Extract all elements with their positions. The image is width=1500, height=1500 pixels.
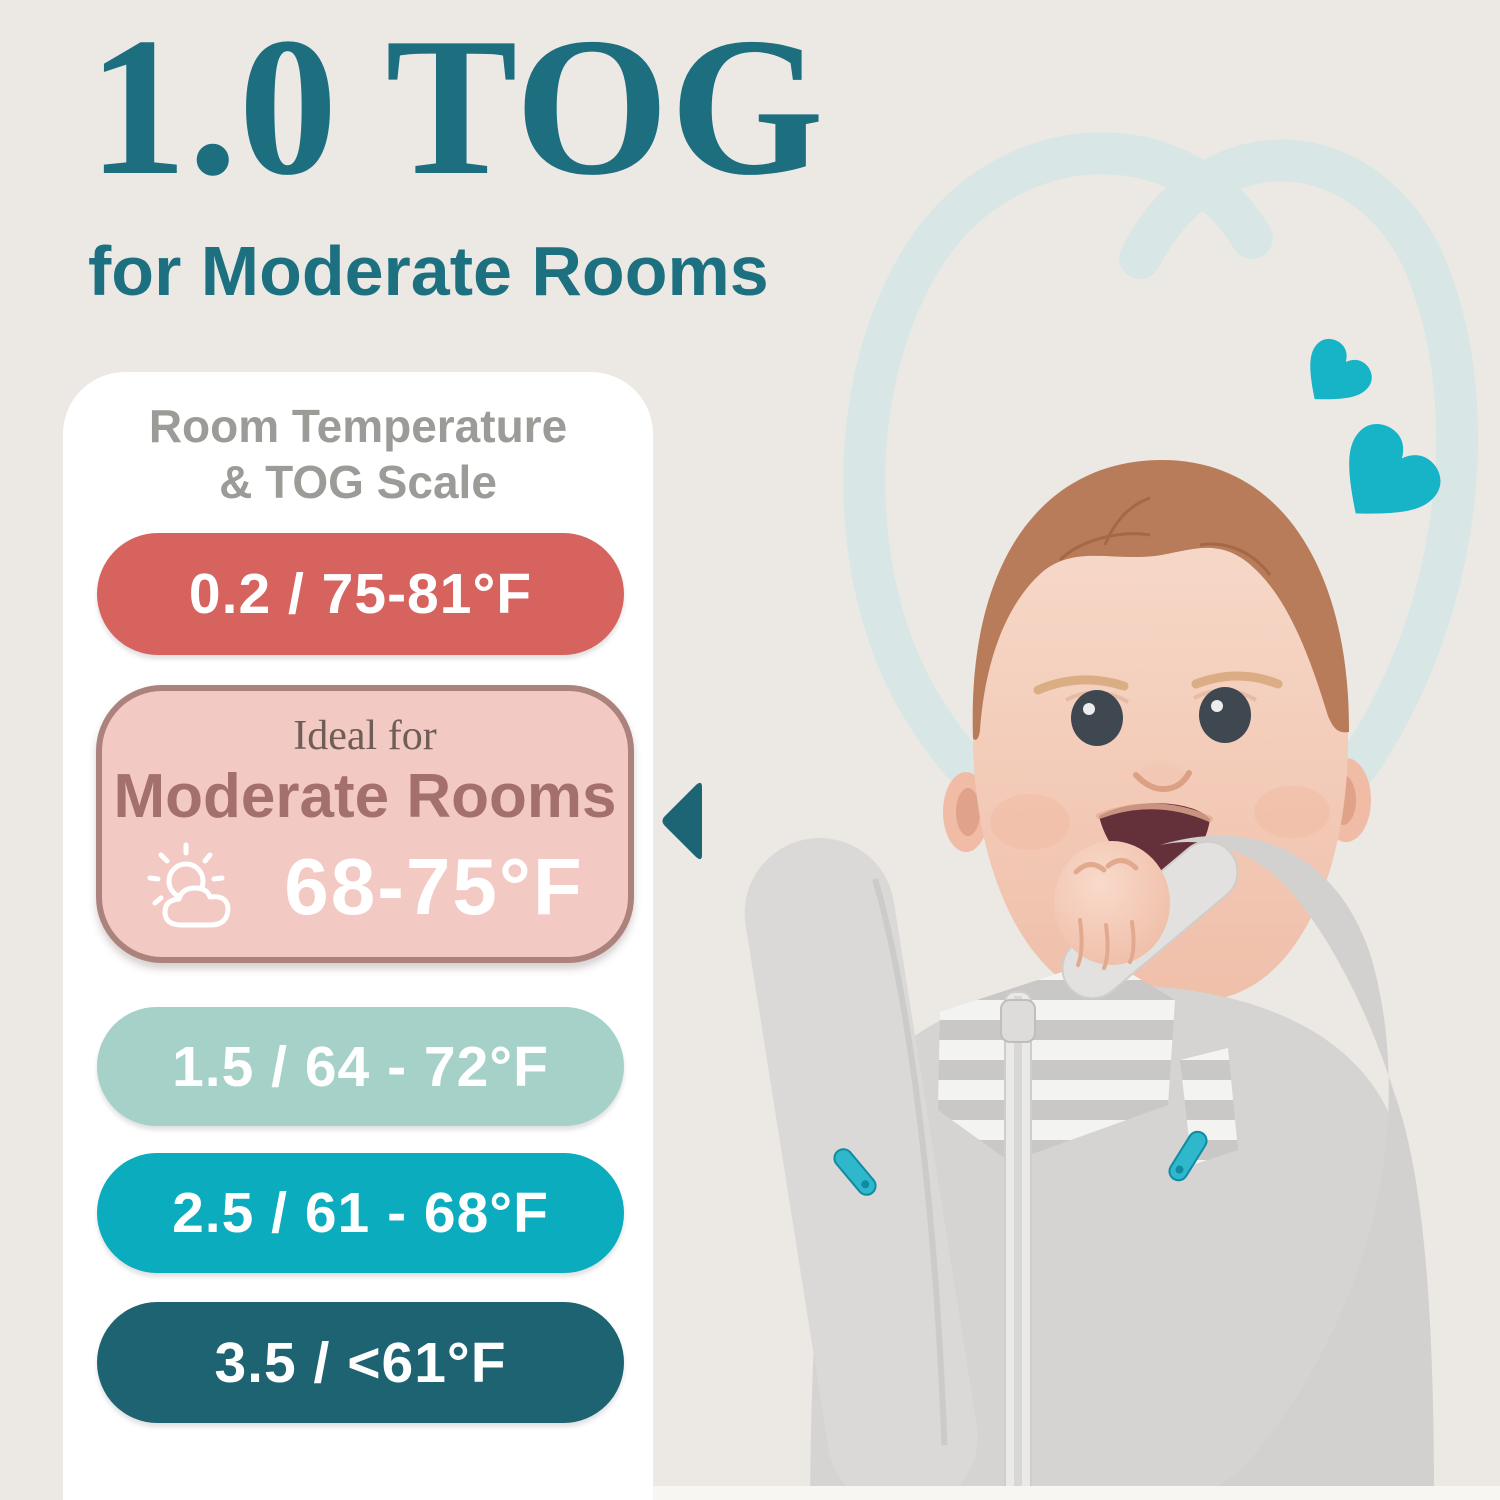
- sun-behind-cloud-icon: [146, 841, 264, 933]
- ideal-room-label: Moderate Rooms: [114, 763, 617, 831]
- tog-row-3-5: 3.5 / <61°F: [97, 1302, 624, 1423]
- scale-heading-line1: Room Temperature: [63, 398, 653, 454]
- ideal-temp-label: 68-75°F: [284, 847, 583, 927]
- tog-row-1-5: 1.5 / 64 - 72°F: [97, 1007, 624, 1126]
- ideal-tog-card: Ideal for Moderate Rooms 68-75°F: [96, 685, 634, 963]
- infographic-canvas: 1.0 TOG for Moderate Rooms Room Temperat…: [0, 0, 1500, 1500]
- page-subtitle: for Moderate Rooms: [88, 236, 769, 306]
- swaddle: [734, 827, 1434, 1500]
- ideal-prefix-label: Ideal for: [293, 715, 436, 757]
- photo-bottom-band: [653, 1486, 1500, 1500]
- scale-heading-line2: & TOG Scale: [63, 454, 653, 510]
- ideal-pointer-icon: [660, 779, 706, 863]
- tog-row-2-5: 2.5 / 61 - 68°F: [97, 1153, 624, 1273]
- zipper: [1001, 992, 1035, 1500]
- ideal-temp-row: 68-75°F: [146, 841, 583, 933]
- scale-heading: Room Temperature & TOG Scale: [63, 398, 653, 510]
- tog-row-0-2: 0.2 / 75-81°F: [97, 533, 624, 655]
- page-title: 1.0 TOG: [88, 8, 825, 206]
